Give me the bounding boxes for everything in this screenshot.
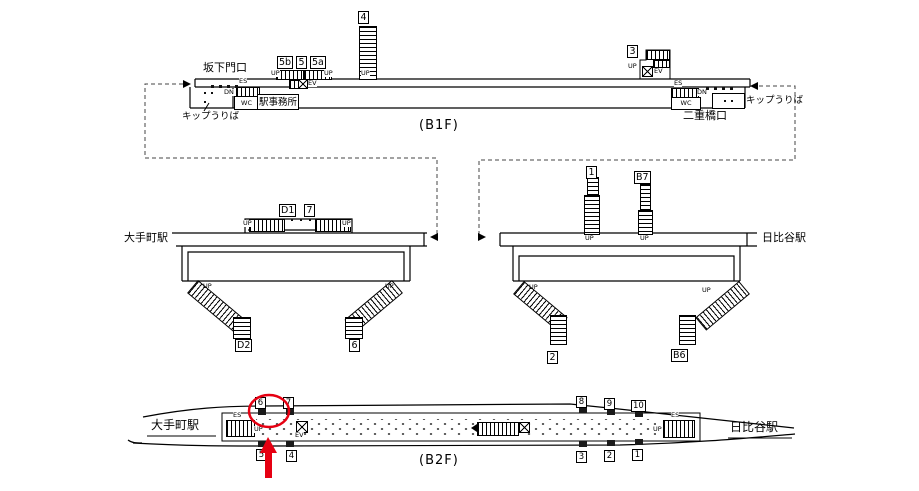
exit-box-1: 1 — [586, 166, 597, 179]
es-label: ES — [674, 80, 682, 87]
elevator-icon — [298, 79, 308, 89]
up-label: UP — [585, 235, 594, 242]
otemachi-station-label-b2f: 大手町駅 — [151, 419, 199, 432]
dn-label: DN — [224, 89, 234, 96]
up-label: UP — [243, 220, 252, 227]
ticket-machines-west — [204, 92, 213, 94]
gate-dot — [227, 85, 230, 88]
exit-box-b6: B6 — [671, 349, 688, 362]
route-arrow-icon — [183, 80, 191, 88]
gate-dot — [235, 85, 238, 88]
exit-box-4: 4 — [358, 11, 369, 24]
up-label: UP — [640, 235, 649, 242]
ad-position-bottom-4: 4 — [286, 450, 297, 462]
ticket-office-label-right: キップうりば — [746, 95, 803, 106]
ticket-gates-east — [706, 87, 733, 90]
stairs-3 — [646, 50, 670, 60]
ad-position-top-8: 8 — [576, 396, 587, 408]
ev-label: EV — [295, 432, 304, 439]
machine-dot — [204, 92, 206, 94]
exit-box-6: 6 — [349, 339, 360, 352]
es-label: ES — [671, 412, 679, 419]
gate-dot — [706, 87, 709, 90]
stair-arm-b6-lower — [679, 315, 696, 345]
hibiya-station-label-b2f: 日比谷駅 — [730, 421, 778, 434]
stair-arm-2-lower — [550, 315, 567, 345]
mezzanine-left-walls — [172, 219, 427, 281]
stairs-b7-upper — [640, 184, 651, 212]
stair-arm-d2-lower — [233, 317, 251, 339]
gate-dot — [211, 85, 214, 88]
ev-label: EV — [654, 68, 663, 75]
pillar-dot — [291, 219, 293, 221]
exit-box-7: 7 — [304, 204, 315, 217]
exit-box-3: 3 — [627, 45, 638, 58]
hibiya-station-label: 日比谷駅 — [762, 231, 806, 244]
machine-dot — [204, 101, 206, 103]
exit-box-d2: D2 — [235, 339, 252, 352]
up-label: UP — [653, 426, 662, 433]
ad-position-top-6: 6 — [255, 397, 266, 409]
route-arrow-icon — [750, 82, 758, 90]
exit-box-b7: B7 — [634, 171, 651, 184]
stairs-d1 — [249, 219, 285, 232]
sign-marker — [258, 409, 266, 415]
wc-room-west: WC — [234, 96, 259, 110]
ticket-gates-west — [211, 85, 238, 88]
exit-box-5a: 5a — [310, 56, 326, 69]
ev-label: EV — [308, 80, 317, 87]
up-label: UP — [529, 284, 538, 291]
sign-marker — [286, 409, 294, 415]
up-label: UP — [324, 70, 333, 77]
station-floor-diagram: 坂下門口 UP UP 5b 5 5a UP 4 EV 3 UP EV ES DN… — [0, 0, 919, 491]
stairs-1-upper — [587, 177, 599, 197]
elevator-icon — [519, 422, 530, 433]
floor-caption-b2f: (B2F) — [419, 453, 459, 468]
route-arrow-icon — [478, 233, 486, 241]
mezzanine-right-walls — [500, 233, 757, 281]
machine-dot — [724, 100, 726, 102]
exit-box-2: 2 — [547, 351, 558, 364]
pillar-dot — [309, 219, 311, 221]
sign-marker — [286, 441, 294, 447]
gate-dot — [714, 87, 717, 90]
exit-box-5b: 5b — [277, 56, 293, 69]
ad-position-bottom-1: 1 — [632, 449, 643, 461]
stairs-b2f-center — [477, 422, 519, 436]
pillar-dots — [291, 219, 311, 221]
stairs-1 — [584, 195, 600, 235]
up-label: UP — [702, 287, 711, 294]
ticket-office-label-left: キップうりば — [182, 111, 239, 122]
ad-position-top-9: 9 — [604, 398, 615, 410]
elevator-icon — [642, 66, 653, 77]
dn-label: DN — [697, 89, 707, 96]
exit-box-d1: D1 — [279, 204, 296, 217]
exit-box-5: 5 — [296, 56, 307, 69]
up-label: UP — [385, 283, 394, 290]
exit-nijubashi-label: 二重橋口 — [683, 109, 727, 122]
up-label: UP — [361, 70, 370, 77]
floor-caption-b1f: (B1F) — [419, 118, 459, 133]
ad-position-top-7: 7 — [283, 397, 294, 409]
sign-marker — [607, 440, 615, 446]
otemachi-station-label: 大手町駅 — [124, 231, 168, 244]
escalator-b2f-east — [663, 420, 695, 438]
ad-position-bottom-5: 5 — [256, 449, 267, 461]
sign-marker — [258, 441, 266, 447]
wc-label: WC — [241, 100, 252, 107]
sign-marker — [579, 441, 587, 447]
pillar-dot — [300, 219, 302, 221]
station-office-label: 駅事務所 — [259, 97, 297, 108]
up-label: UP — [203, 283, 212, 290]
route-dashed-right — [479, 86, 795, 237]
gate-dot — [722, 87, 725, 90]
platform-pillar-dots — [256, 419, 656, 437]
gate-dot — [219, 85, 222, 88]
machine-dot — [211, 92, 213, 94]
highlight-annotation — [0, 0, 919, 491]
ad-position-bottom-2: 2 — [604, 450, 615, 462]
stairs-b7 — [638, 210, 653, 235]
es-label: ES — [239, 78, 247, 85]
ad-position-top-10: 10 — [631, 400, 646, 412]
up-label: UP — [628, 63, 637, 70]
wc-label: WC — [681, 100, 692, 107]
escalator-b2f-west — [226, 420, 255, 437]
stair-arm-6-lower — [345, 317, 363, 339]
ad-position-bottom-3: 3 — [576, 451, 587, 463]
up-label: UP — [271, 70, 280, 77]
up-label: UP — [342, 220, 351, 227]
sign-marker — [635, 439, 643, 445]
gate-dot — [730, 87, 733, 90]
es-label: ES — [233, 412, 241, 419]
up-label: UP — [254, 426, 263, 433]
diagram-linework — [0, 0, 919, 491]
station-office: 駅事務所 — [257, 94, 299, 110]
ticket-machines-east — [712, 93, 745, 109]
exit-sakashitamon-label: 坂下門口 — [203, 61, 247, 74]
route-arrow-icon — [430, 233, 438, 241]
machine-dot — [731, 100, 733, 102]
